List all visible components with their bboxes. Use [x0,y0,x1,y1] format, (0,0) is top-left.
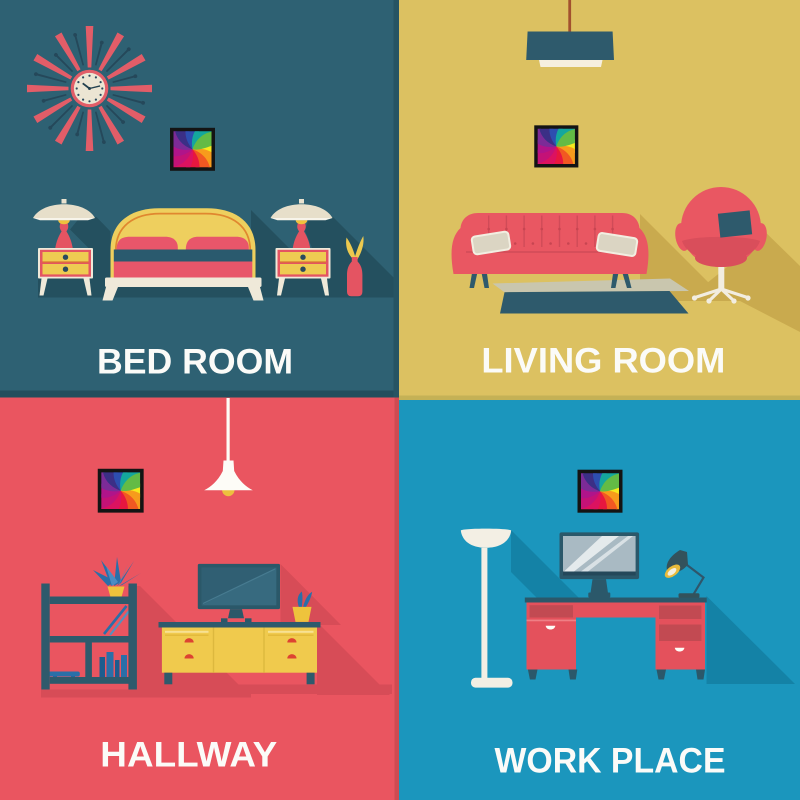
svg-text:WORK PLACE: WORK PLACE [495,741,726,781]
svg-text:HALLWAY: HALLWAY [100,736,277,775]
svg-text:BED ROOM: BED ROOM [97,343,293,382]
svg-text:LIVING ROOM: LIVING ROOM [481,341,725,380]
